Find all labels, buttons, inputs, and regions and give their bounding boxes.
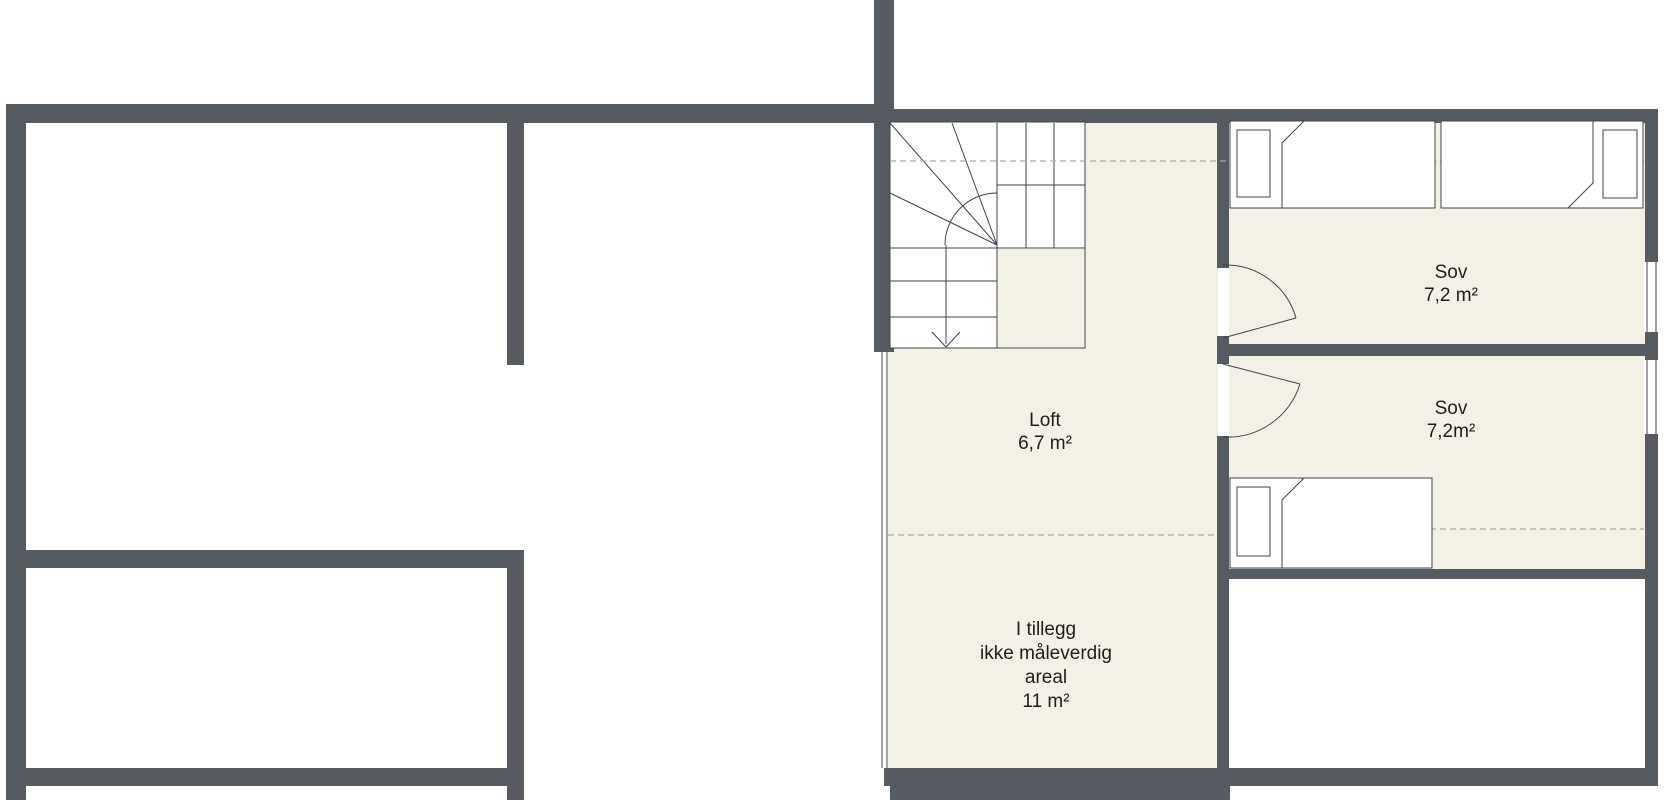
staircase-icon <box>890 122 1085 348</box>
label-line: I tillegg <box>926 618 1166 642</box>
room-name: Sov <box>1351 261 1551 284</box>
room-name: Loft <box>945 409 1145 432</box>
room-area: 6,7 m² <box>945 432 1145 455</box>
label-line: ikke måleverdig <box>926 642 1166 666</box>
room-label-bedroom-2: Sov 7,2m² <box>1351 397 1551 443</box>
door-swing-icon-bedroom1 <box>1223 265 1296 338</box>
window-icon-1 <box>1644 262 1659 332</box>
window-icon-2 <box>1644 360 1659 434</box>
loft-boundary-double-line <box>882 352 887 768</box>
room-label-bedroom-1: Sov 7,2 m² <box>1351 261 1551 307</box>
room-label-loft: Loft 6,7 m² <box>945 409 1145 455</box>
label-line: 11 m² <box>926 690 1166 714</box>
door-swing-icon-bedroom2 <box>1223 364 1300 437</box>
bed-icon-1 <box>1230 121 1435 208</box>
bed-icon-2 <box>1441 121 1643 208</box>
bed-icon-3 <box>1230 478 1432 568</box>
room-label-additional-area: I tillegg ikke måleverdig areal 11 m² <box>926 618 1166 714</box>
room-area: 7,2m² <box>1351 420 1551 443</box>
floor-plan-canvas: Loft 6,7 m² Sov 7,2 m² Sov 7,2m² I tille… <box>0 0 1670 800</box>
room-name: Sov <box>1351 397 1551 420</box>
room-area: 7,2 m² <box>1351 284 1551 307</box>
label-line: areal <box>926 666 1166 690</box>
